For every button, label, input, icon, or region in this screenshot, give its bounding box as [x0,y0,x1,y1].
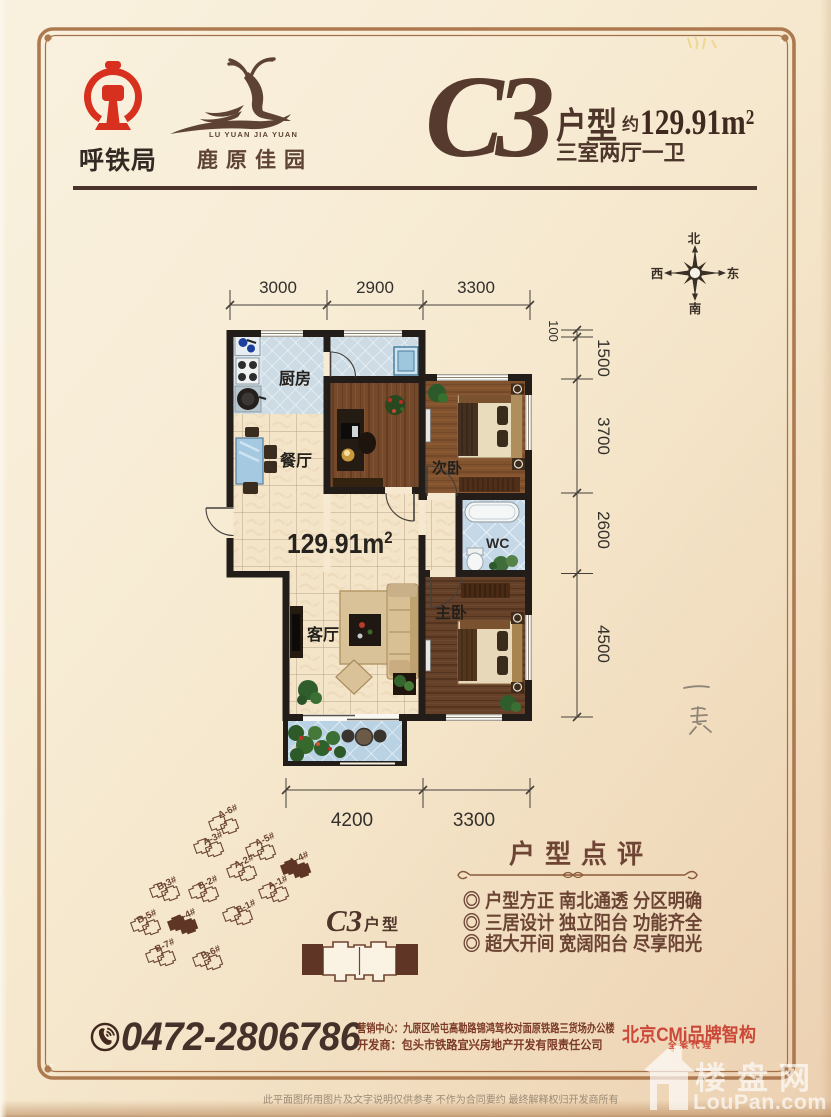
svg-text:3000: 3000 [259,278,297,297]
svg-text:东: 东 [727,266,740,281]
svg-text:2600: 2600 [594,511,613,549]
svg-text:南: 南 [689,301,702,316]
svg-text:A-6#: A-6# [216,802,240,821]
svg-text:西: 西 [651,267,664,281]
svg-text:C3: C3 [326,903,362,938]
svg-text:1500: 1500 [594,339,613,377]
svg-text:厨房: 厨房 [279,369,311,388]
svg-text:LouPan.com: LouPan.com [693,1090,827,1114]
svg-text:北: 北 [688,231,701,246]
svg-text:100: 100 [546,320,561,342]
svg-text:户型: 户型 [364,915,400,934]
svg-text:餐厅: 餐厅 [279,451,312,470]
svg-text:客厅: 客厅 [307,625,339,644]
svg-text:4500: 4500 [594,625,613,663]
svg-text:3700: 3700 [594,417,613,455]
svg-text:B-1#: B-1# [234,897,258,916]
svg-text:3300: 3300 [453,810,495,831]
svg-text:2900: 2900 [356,278,394,297]
svg-text:3300: 3300 [457,278,495,297]
svg-text:129.91m2: 129.91m2 [287,528,393,560]
svg-text:4200: 4200 [331,810,373,831]
svg-text:WC: WC [486,535,509,551]
